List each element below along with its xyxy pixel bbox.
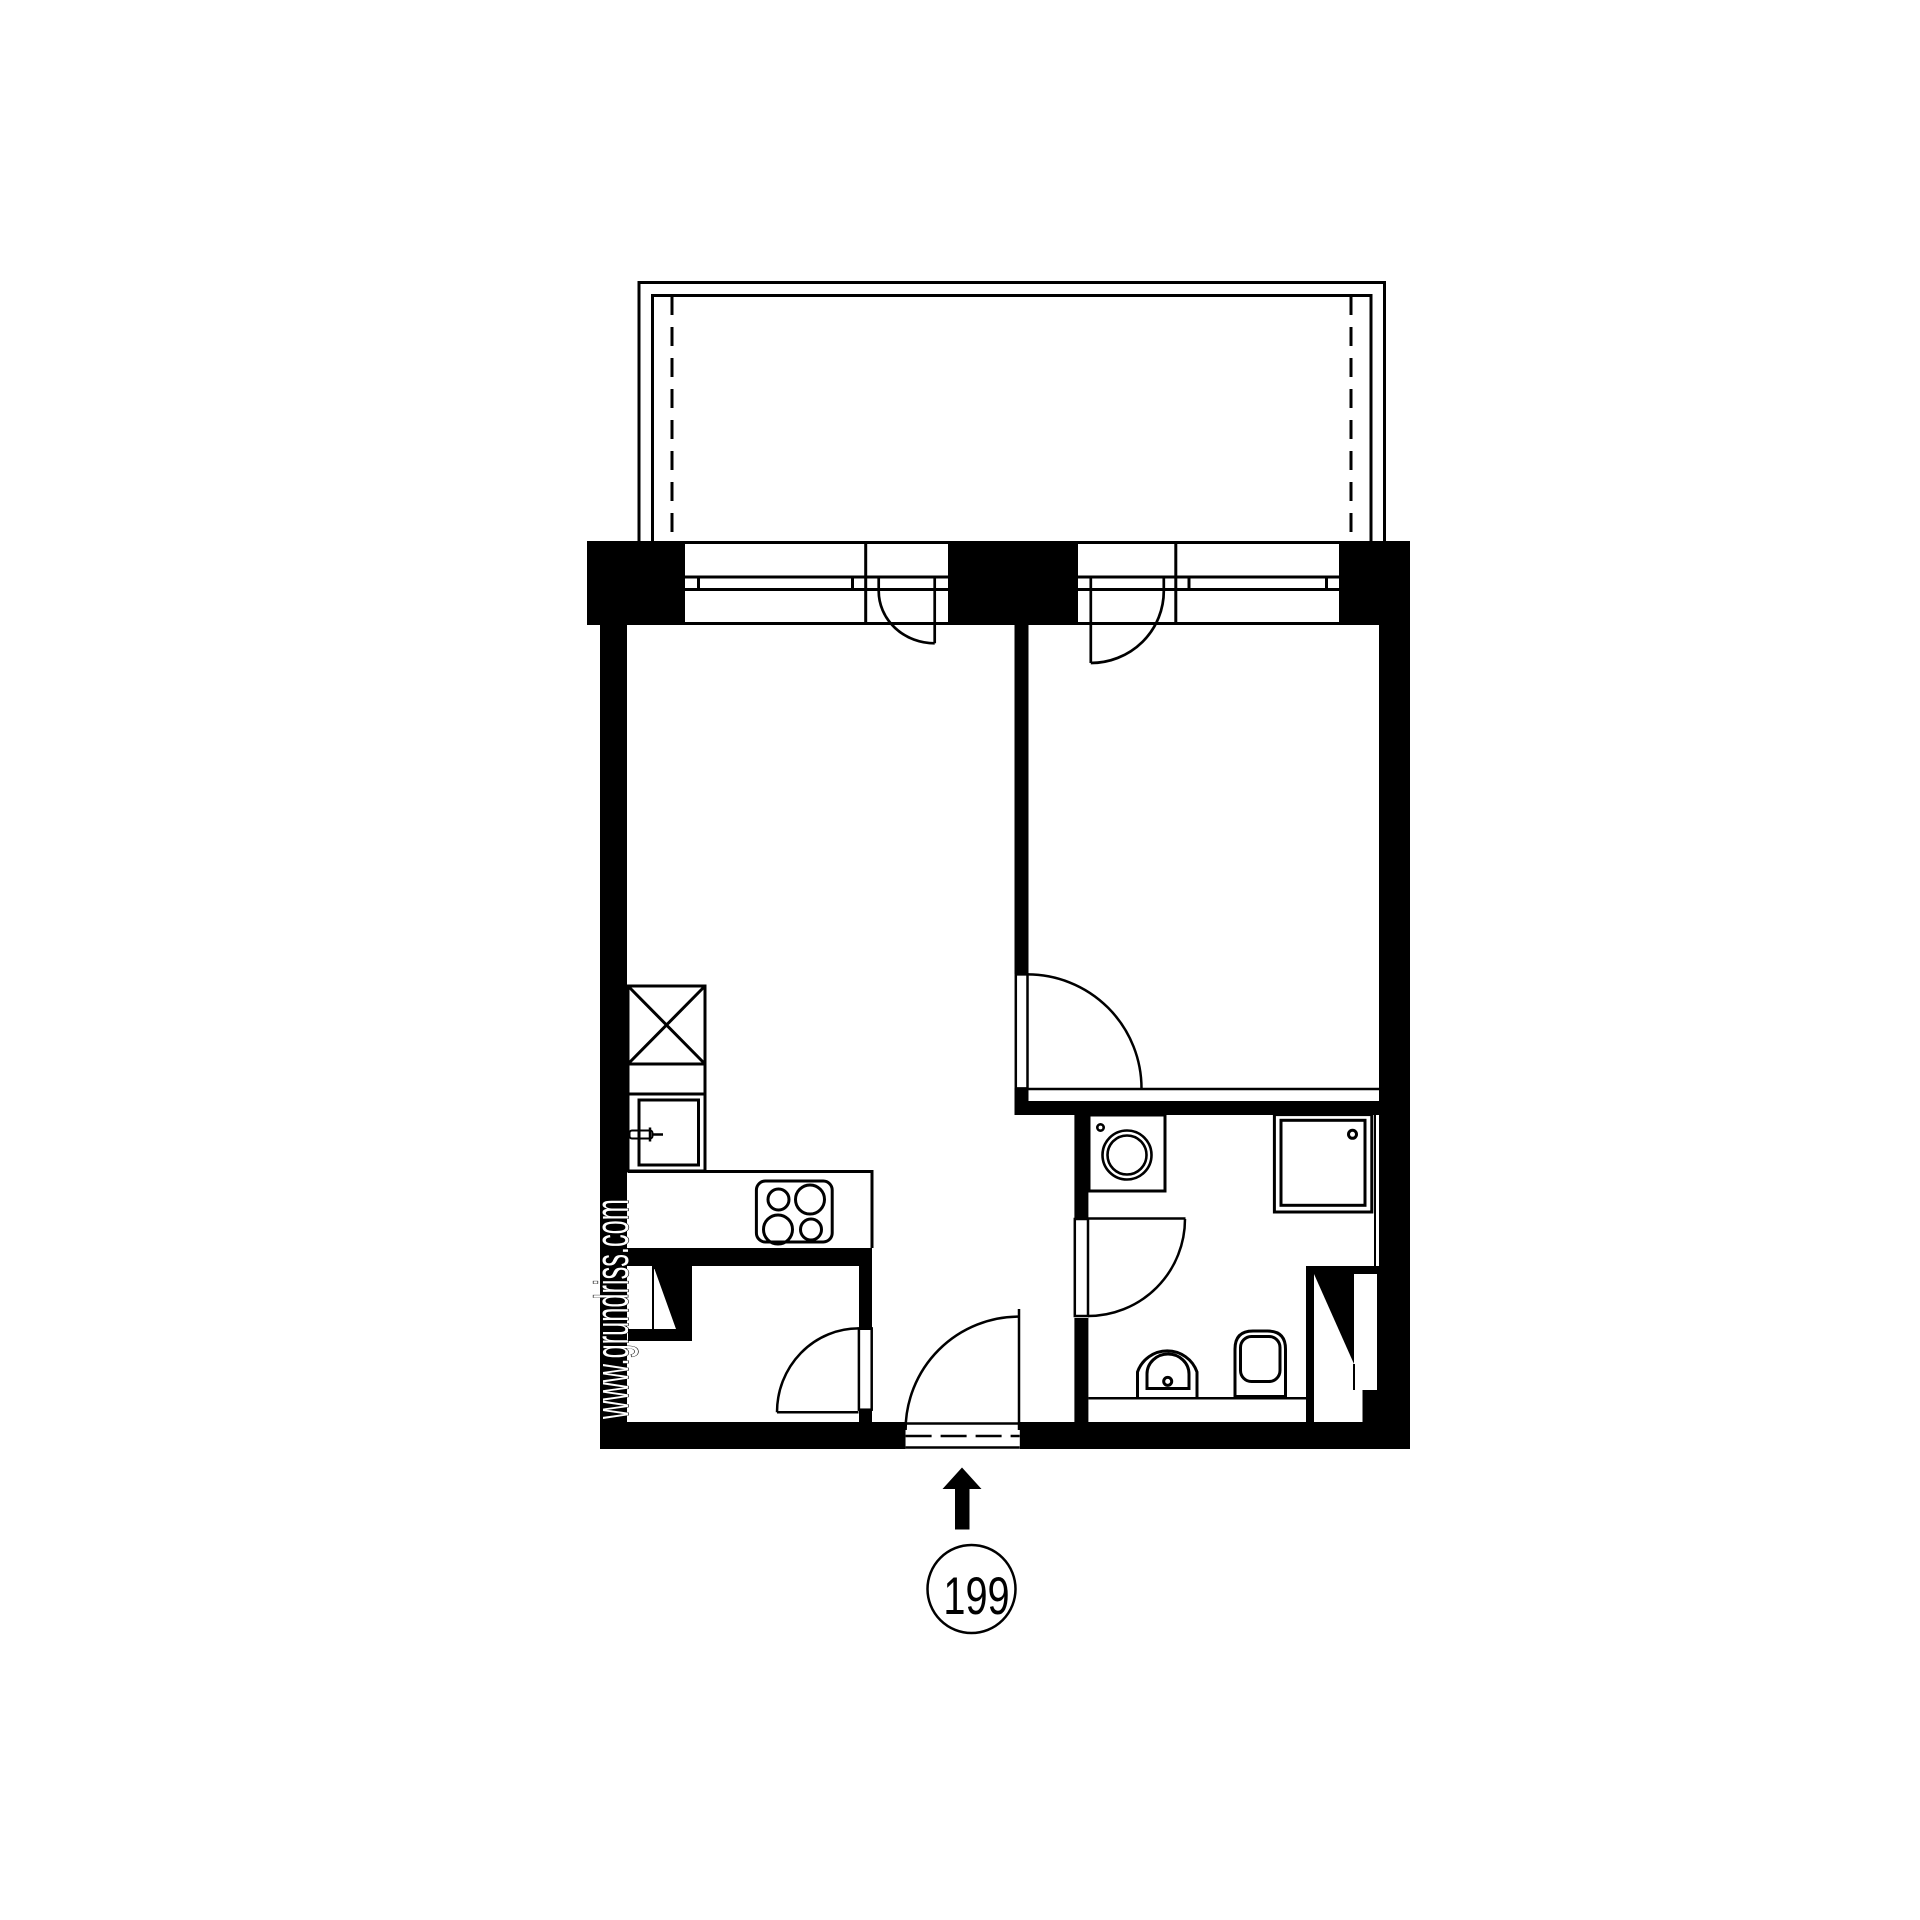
svg-text:www.grundriss.com: www.grundriss.com (587, 1199, 639, 1420)
svg-text:199: 199 (943, 1566, 1009, 1625)
